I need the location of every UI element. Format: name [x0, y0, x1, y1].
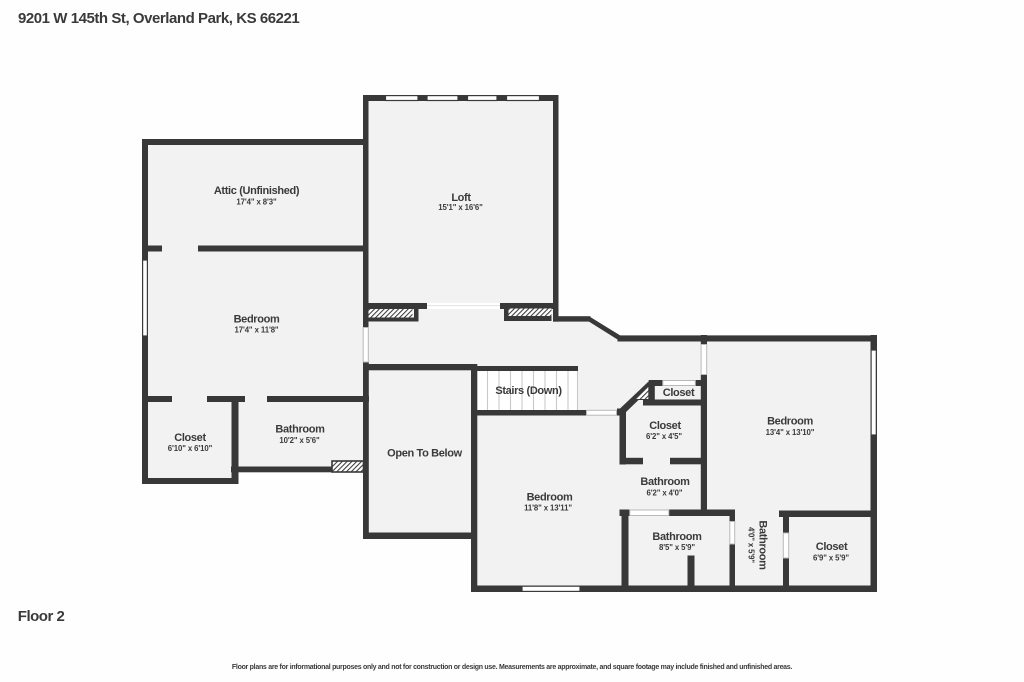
svg-text:Bedroom: Bedroom [767, 416, 813, 428]
svg-text:Closet: Closet [649, 420, 681, 432]
svg-text:4'0" x 5'9": 4'0" x 5'9" [747, 527, 756, 563]
svg-text:Bathroom: Bathroom [640, 476, 690, 488]
svg-text:6'10" x 6'10": 6'10" x 6'10" [168, 444, 213, 453]
svg-text:6'2" x 4'0": 6'2" x 4'0" [646, 489, 682, 498]
svg-text:17'4" x 11'8": 17'4" x 11'8" [234, 325, 278, 334]
svg-text:13'4" x 13'10": 13'4" x 13'10" [766, 428, 815, 437]
svg-text:6'9" x 5'9": 6'9" x 5'9" [813, 554, 849, 563]
svg-text:8'5" x 5'9": 8'5" x 5'9" [659, 543, 695, 552]
svg-text:6'2" x 4'5": 6'2" x 4'5" [646, 432, 682, 441]
svg-text:Bathroom: Bathroom [652, 531, 702, 543]
svg-text:Stairs (Down): Stairs (Down) [495, 385, 562, 397]
svg-text:Bedroom: Bedroom [234, 314, 280, 326]
svg-text:Bathroom: Bathroom [275, 424, 325, 436]
svg-text:9201 W 145th St, Overland Park: 9201 W 145th St, Overland Park, KS 66221 [18, 10, 299, 27]
svg-text:11'8" x 13'11": 11'8" x 13'11" [524, 504, 572, 513]
svg-text:17'4" x 8'3": 17'4" x 8'3" [236, 198, 277, 207]
svg-text:Bathroom: Bathroom [757, 520, 769, 570]
svg-text:Attic (Unfinished): Attic (Unfinished) [214, 185, 300, 197]
svg-text:10'2" x 5'6": 10'2" x 5'6" [279, 436, 320, 445]
svg-text:Open To Below: Open To Below [387, 448, 462, 460]
svg-text:Closet: Closet [816, 541, 848, 553]
svg-text:Floor 2: Floor 2 [18, 608, 65, 625]
svg-text:Floor plans are for informatio: Floor plans are for informational purpos… [232, 664, 792, 671]
svg-text:15'1" x 16'6": 15'1" x 16'6" [438, 203, 483, 212]
svg-text:Bedroom: Bedroom [527, 492, 573, 504]
svg-text:Closet: Closet [174, 432, 206, 444]
svg-text:Closet: Closet [663, 387, 695, 399]
